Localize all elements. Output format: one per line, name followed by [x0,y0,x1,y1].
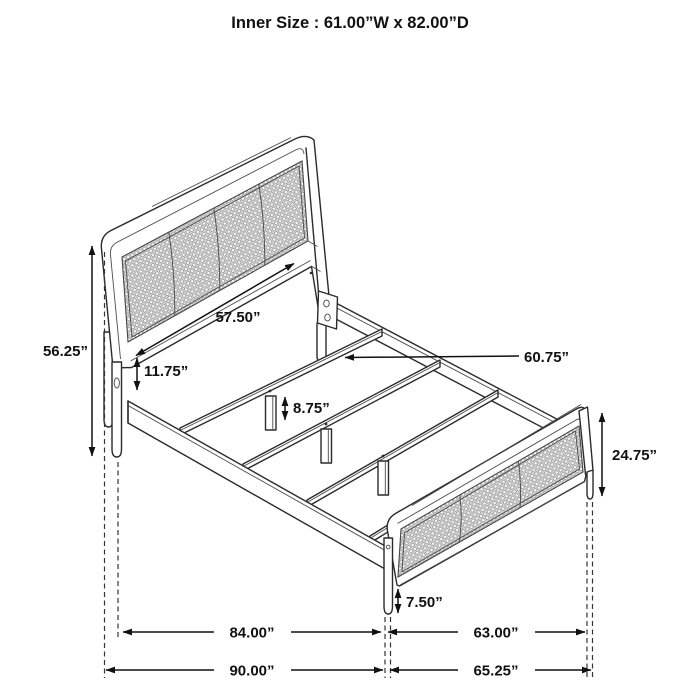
rail-bracket [318,291,338,329]
slat-1 [180,329,382,435]
dim-slat-leg-height: 8.75” [285,397,330,420]
footboard [384,405,593,615]
footboard-front-left-leg [384,538,393,614]
dim-length-inner: 84.00” [123,622,381,642]
dim-footboard-height: 24.75” [602,413,657,496]
dim-width-footboard: 63.00” [388,622,585,642]
headboard-back-right-leg [317,321,326,362]
dim-footboard-leg-height: 7.50” [398,589,443,613]
dim-slat-leg-height-label: 8.75” [293,400,330,417]
headboard-front-left-leg [112,362,122,457]
post-screw [310,272,313,275]
dim-width-footboard-label: 63.00” [473,625,518,642]
dim-length-overall: 90.00” [106,660,383,680]
dim-headboard-width-label: 57.50” [215,309,260,326]
dim-width-overall: 65.25” [390,660,591,680]
footboard-back-right-leg [587,470,593,499]
bed-diagram-canvas: 56.25” 57.50” 11.75” 8.75” 60.75” 24.75”… [0,0,700,700]
dim-deck-height-label: 11.75” [144,363,188,380]
dim-footboard-leg-height-label: 7.50” [406,594,443,611]
dim-headboard-height-label: 56.25” [43,343,88,360]
bed-dimension-diagram-page: 56.25” 57.50” 11.75” 8.75” 60.75” 24.75”… [0,0,700,700]
dim-slat-length-label: 60.75” [524,349,569,366]
front-side-rail [128,401,387,569]
dim-footboard-height-label: 24.75” [612,447,657,464]
dim-width-overall-label: 65.25” [473,663,518,680]
diagram-title: Inner Size : 61.00”W x 82.00”D [231,14,469,32]
dim-length-overall-label: 90.00” [229,663,274,680]
dim-headboard-height: 56.25” [43,246,92,456]
dim-length-inner-label: 84.00” [229,625,274,642]
dim-deck-height: 11.75” [137,358,188,390]
dim-slat-length: 60.75” [345,349,569,366]
